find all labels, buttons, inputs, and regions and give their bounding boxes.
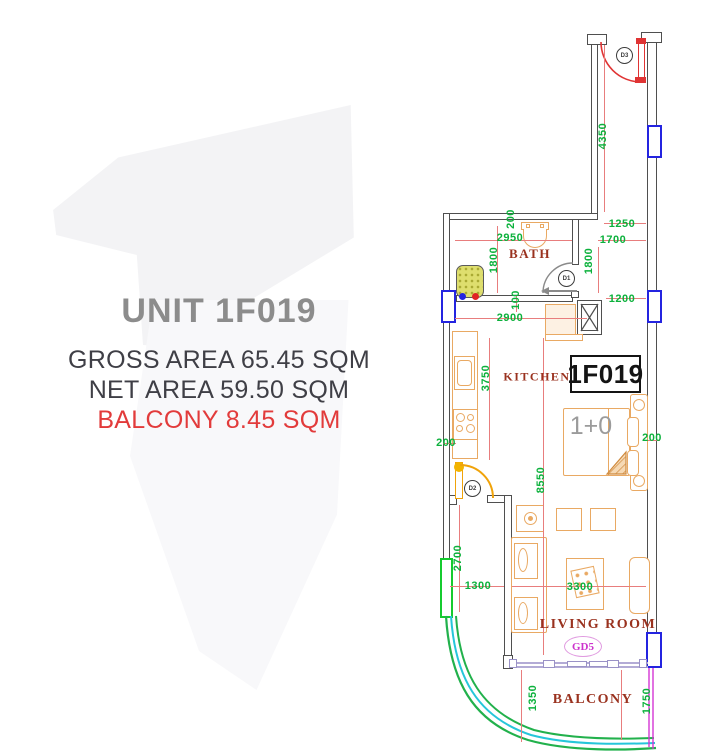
washing-machine (545, 304, 576, 335)
dimension-label: 200 (436, 437, 456, 449)
net-area-text: NET AREA 59.50 SQM (38, 375, 400, 405)
dimension-label: 8550 (535, 467, 547, 493)
balcony-railing-middle (451, 616, 655, 744)
door-tag-d3[interactable]: D3 (616, 47, 633, 64)
tv-speaker-dot (528, 516, 533, 521)
balcony-door-panel (589, 661, 609, 667)
dimension-line (489, 338, 490, 460)
sofa-seat-oval (518, 548, 528, 572)
wall-bath-right (572, 219, 579, 265)
bedside-knob (633, 399, 645, 411)
dimension-label: 1300 (465, 580, 491, 592)
floorplan-page: UNIT 1F019 GROSS AREA 65.45 SQM NET AREA… (0, 0, 717, 755)
dimension-label: 1200 (609, 293, 635, 305)
balcony-door-panel (639, 659, 647, 668)
dimension-label: 100 (510, 290, 522, 310)
balcony-area-text: BALCONY 8.45 SQM (38, 405, 400, 435)
kitchen-sink-basin (457, 360, 472, 386)
bedside-knob (633, 475, 645, 487)
balcony-door-panel (543, 660, 555, 668)
room-label-kitchen: KITCHEN (503, 370, 570, 385)
unit-info-panel: UNIT 1F019 GROSS AREA 65.45 SQM NET AREA… (38, 292, 400, 435)
wall-cap-top-left (587, 34, 607, 45)
door-tag-d1-text: D1 (563, 276, 571, 282)
dimension-label: 1750 (641, 688, 653, 714)
door-leaf-d3[interactable] (638, 42, 645, 80)
dimension-label: 200 (642, 432, 662, 444)
stove-burner (456, 413, 465, 422)
window-bedroom-right (647, 290, 662, 323)
ottoman (556, 508, 582, 531)
dimension-label: 3300 (567, 581, 593, 593)
bed-type-label: 1+0 (568, 412, 614, 441)
dimension-line (521, 670, 522, 742)
door-swing-arrowhead-d1 (541, 287, 549, 295)
door-hinge-d3 (636, 38, 646, 44)
dimension-line (543, 338, 544, 655)
gross-area-text: GROSS AREA 65.45 SQM (38, 345, 400, 375)
balcony-door-panel (607, 660, 619, 668)
door-tag-d1[interactable]: D1 (558, 270, 575, 287)
door-tag-d3-text: D3 (621, 53, 629, 59)
bath-sink-detail (526, 224, 530, 228)
door-tag-d2-text: D2 (469, 486, 477, 492)
room-label-balcony: BALCONY (553, 692, 634, 708)
dimension-label: 3750 (480, 365, 492, 391)
dimension-label: 1800 (583, 248, 595, 274)
sofa-seat-oval (518, 602, 528, 624)
dimension-label: 2900 (497, 312, 523, 324)
window-corridor-right (647, 125, 662, 158)
dimension-label: 4350 (597, 123, 609, 149)
wall-bath-jog (571, 291, 579, 298)
unit-number-box: 1F019 (570, 355, 641, 393)
window-bath-left (441, 290, 456, 323)
dimension-label: 1700 (600, 234, 626, 246)
balcony-door-panel (509, 659, 517, 668)
stove-burner (467, 414, 474, 421)
bed-pillow (627, 417, 639, 447)
room-label-bath: BATH (509, 246, 551, 262)
balcony-door-panel (567, 661, 587, 667)
column-balcony-right (646, 632, 662, 668)
dimension-label: 1250 (609, 218, 635, 230)
dimension-label: 200 (505, 209, 517, 229)
balcony-railing-inner (456, 616, 654, 739)
dimension-line (598, 247, 599, 293)
hot-water-tap (472, 293, 479, 300)
dimension-label: 2700 (452, 545, 464, 571)
balcony-door-label: GD5 (564, 636, 602, 657)
balcony-railing-outer (446, 616, 656, 750)
dimension-label: 2950 (497, 232, 523, 244)
bath-sink-detail (540, 224, 544, 228)
unit-title: UNIT 1F019 (38, 292, 400, 331)
dimension-label: 1350 (527, 685, 539, 711)
ottoman (590, 508, 616, 531)
dimension-label: 1800 (488, 247, 500, 273)
door-stop-d3 (635, 77, 646, 83)
room-label-living-room: LIVING ROOM (540, 617, 656, 633)
cold-water-tap (459, 293, 466, 300)
wall-left-exterior (443, 213, 450, 563)
stove-burner (466, 424, 475, 433)
door-hinge-d2 (454, 462, 464, 472)
bed-pillow (627, 450, 639, 476)
kitchen-counter-strip (545, 334, 583, 341)
door-tag-d2[interactable]: D2 (464, 480, 481, 497)
wall-right-exterior (647, 33, 657, 633)
stove-burner (456, 425, 463, 432)
